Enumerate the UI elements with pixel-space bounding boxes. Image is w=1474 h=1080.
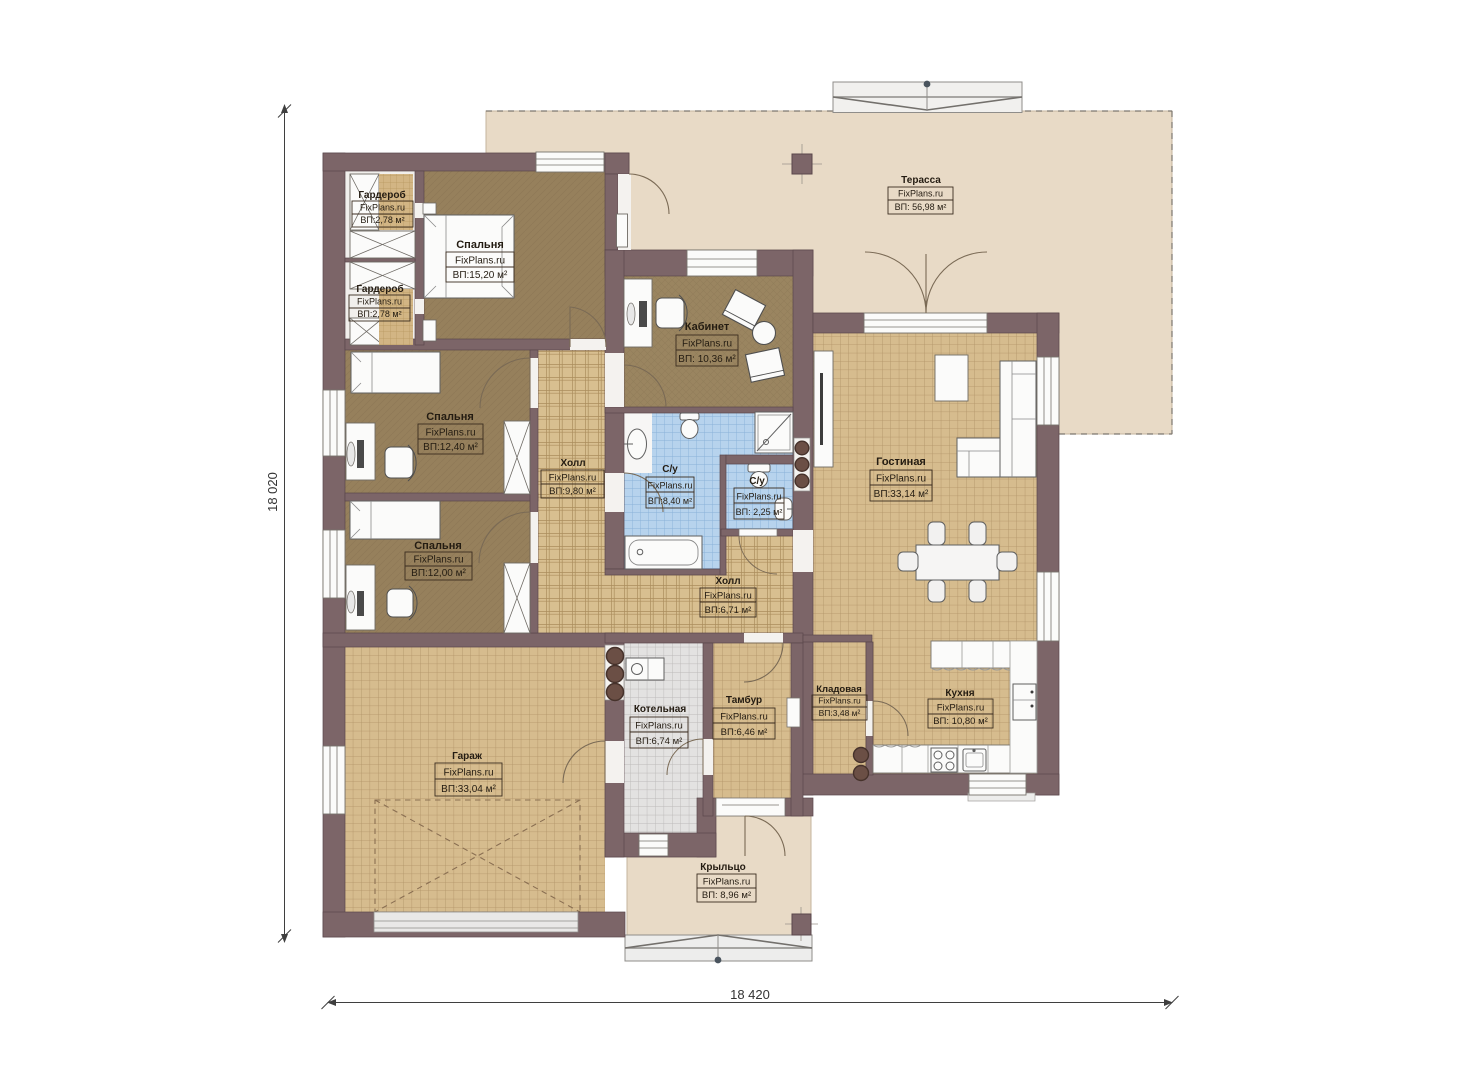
svg-text:FixPlans.ru: FixPlans.ru [549,473,597,484]
svg-text:FixPlans.ru: FixPlans.ru [413,555,463,566]
svg-text:Терасса: Терасса [901,175,941,186]
svg-text:ВП:6,71 м²: ВП:6,71 м² [705,605,752,616]
svg-text:С/у: С/у [749,476,765,487]
svg-text:ВП:8,40 м²: ВП:8,40 м² [648,496,692,506]
svg-text:FixPlans.ru: FixPlans.ru [443,768,493,779]
svg-text:FixPlans.ru: FixPlans.ru [736,492,781,502]
svg-text:FixPlans.ru: FixPlans.ru [898,189,943,199]
svg-text:ВП:2,78 м²: ВП:2,78 м² [360,215,404,225]
svg-text:Спальня: Спальня [426,411,474,423]
svg-text:Кухня: Кухня [945,688,974,699]
svg-text:FixPlans.ru: FixPlans.ru [425,428,475,439]
svg-text:Спальня: Спальня [414,540,462,552]
svg-text:FixPlans.ru: FixPlans.ru [818,696,861,706]
svg-text:ВП:12,00 м²: ВП:12,00 м² [411,568,466,579]
svg-text:FixPlans.ru: FixPlans.ru [635,721,683,732]
svg-text:Кладовая: Кладовая [816,684,862,695]
svg-text:FixPlans.ru: FixPlans.ru [360,203,405,213]
svg-text:Крыльцо: Крыльцо [700,862,746,873]
svg-text:FixPlans.ru: FixPlans.ru [704,591,752,602]
svg-text:С/у: С/у [662,464,678,475]
svg-text:ВП: 2,25 м²: ВП: 2,25 м² [736,507,783,517]
svg-text:FixPlans.ru: FixPlans.ru [876,474,926,485]
svg-text:FixPlans.ru: FixPlans.ru [682,339,732,350]
svg-text:ВП:3,48 м²: ВП:3,48 м² [819,708,861,718]
svg-text:18 420: 18 420 [730,987,770,1002]
svg-text:ВП: 8,96 м²: ВП: 8,96 м² [702,890,751,901]
svg-text:ВП:9,80 м²: ВП:9,80 м² [549,486,596,497]
svg-text:Холл: Холл [560,458,585,469]
svg-text:Котельная: Котельная [634,704,687,715]
svg-text:ВП:6,74 м²: ВП:6,74 м² [636,736,683,747]
svg-text:Кабинет: Кабинет [685,321,730,333]
svg-text:ВП: 56,98 м²: ВП: 56,98 м² [895,202,947,212]
svg-text:FixPlans.ru: FixPlans.ru [703,877,751,888]
svg-text:Гардероб: Гардероб [358,189,405,201]
svg-text:FixPlans.ru: FixPlans.ru [455,256,505,267]
svg-text:ВП:15,20 м²: ВП:15,20 м² [453,270,508,281]
svg-text:FixPlans.ru: FixPlans.ru [357,297,402,307]
svg-text:Гардероб: Гардероб [356,283,403,295]
svg-text:ВП:33,04 м²: ВП:33,04 м² [441,784,496,795]
svg-text:FixPlans.ru: FixPlans.ru [647,481,692,491]
svg-text:FixPlans.ru: FixPlans.ru [720,712,768,723]
svg-text:Гараж: Гараж [452,751,483,762]
svg-text:ВП: 10,36 м²: ВП: 10,36 м² [678,354,736,365]
svg-text:Тамбур: Тамбур [726,694,762,706]
svg-text:ВП:12,40 м²: ВП:12,40 м² [423,442,478,453]
svg-text:ВП:6,46 м²: ВП:6,46 м² [721,727,768,738]
svg-text:ВП:33,14 м²: ВП:33,14 м² [874,489,929,500]
svg-text:Холл: Холл [715,576,740,587]
svg-text:Гостиная: Гостиная [876,456,926,468]
svg-text:18 020: 18 020 [265,472,280,512]
svg-text:ВП:2,78 м²: ВП:2,78 м² [357,309,401,319]
svg-text:ВП: 10,80 м²: ВП: 10,80 м² [933,716,988,727]
svg-text:FixPlans.ru: FixPlans.ru [937,703,985,714]
svg-text:Спальня: Спальня [456,239,504,251]
